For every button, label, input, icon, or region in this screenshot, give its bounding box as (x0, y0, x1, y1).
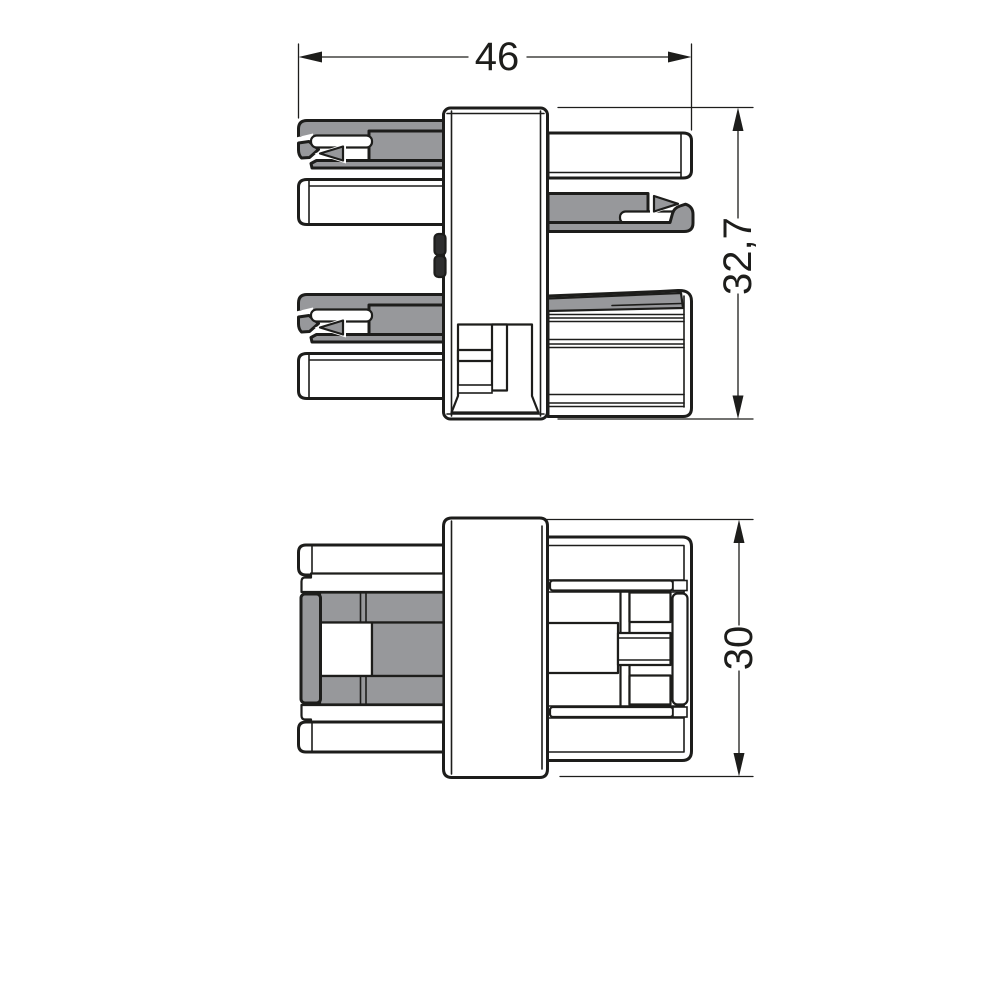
contact-blade-right (548, 191, 695, 232)
foot-ledge (458, 385, 492, 393)
plug-step-top (302, 574, 444, 593)
plan-view (299, 518, 692, 778)
plug-side-plan (299, 545, 444, 752)
housing-foot (452, 325, 539, 413)
side-view (296, 108, 695, 419)
contact-blade-left-bottom (296, 295, 444, 343)
housing-key-bump (435, 256, 446, 277)
plug-latch-rail (301, 594, 321, 703)
central-housing-plan (444, 518, 548, 778)
dim-arrow-right (668, 52, 692, 63)
plug-window (320, 623, 372, 677)
dim-arrow-down (733, 396, 744, 420)
dim-arrow-left (299, 52, 323, 63)
socket-contact-slot (673, 594, 688, 705)
pin-left-bottom (299, 354, 444, 399)
foot-rib-vertical (492, 325, 507, 391)
foot-rib-horizontal (458, 350, 492, 361)
dimension-label-side-height: 32,7 (716, 217, 760, 295)
dimension-label-width: 46 (475, 35, 520, 79)
plug-contact-block (301, 593, 444, 705)
drawing-canvas: 46 32,7 (0, 0, 991, 1000)
central-housing-side (435, 108, 548, 419)
dim-arrow-down (734, 753, 745, 777)
socket-housing (548, 290, 692, 416)
pin-right-top (548, 133, 692, 178)
pin-left-middle (299, 180, 444, 225)
dimension-label-plan-height: 30 (717, 626, 761, 671)
plug-pin-bottom (299, 722, 444, 752)
dim-arrow-up (733, 108, 744, 132)
plug-pin-top (299, 545, 444, 575)
housing-key-bump (435, 234, 446, 255)
connector-technical-drawing: 46 32,7 (0, 0, 991, 1000)
contact-blade-left-top (296, 121, 444, 169)
dim-arrow-up (734, 520, 745, 544)
socket-housing-plan (548, 537, 692, 761)
